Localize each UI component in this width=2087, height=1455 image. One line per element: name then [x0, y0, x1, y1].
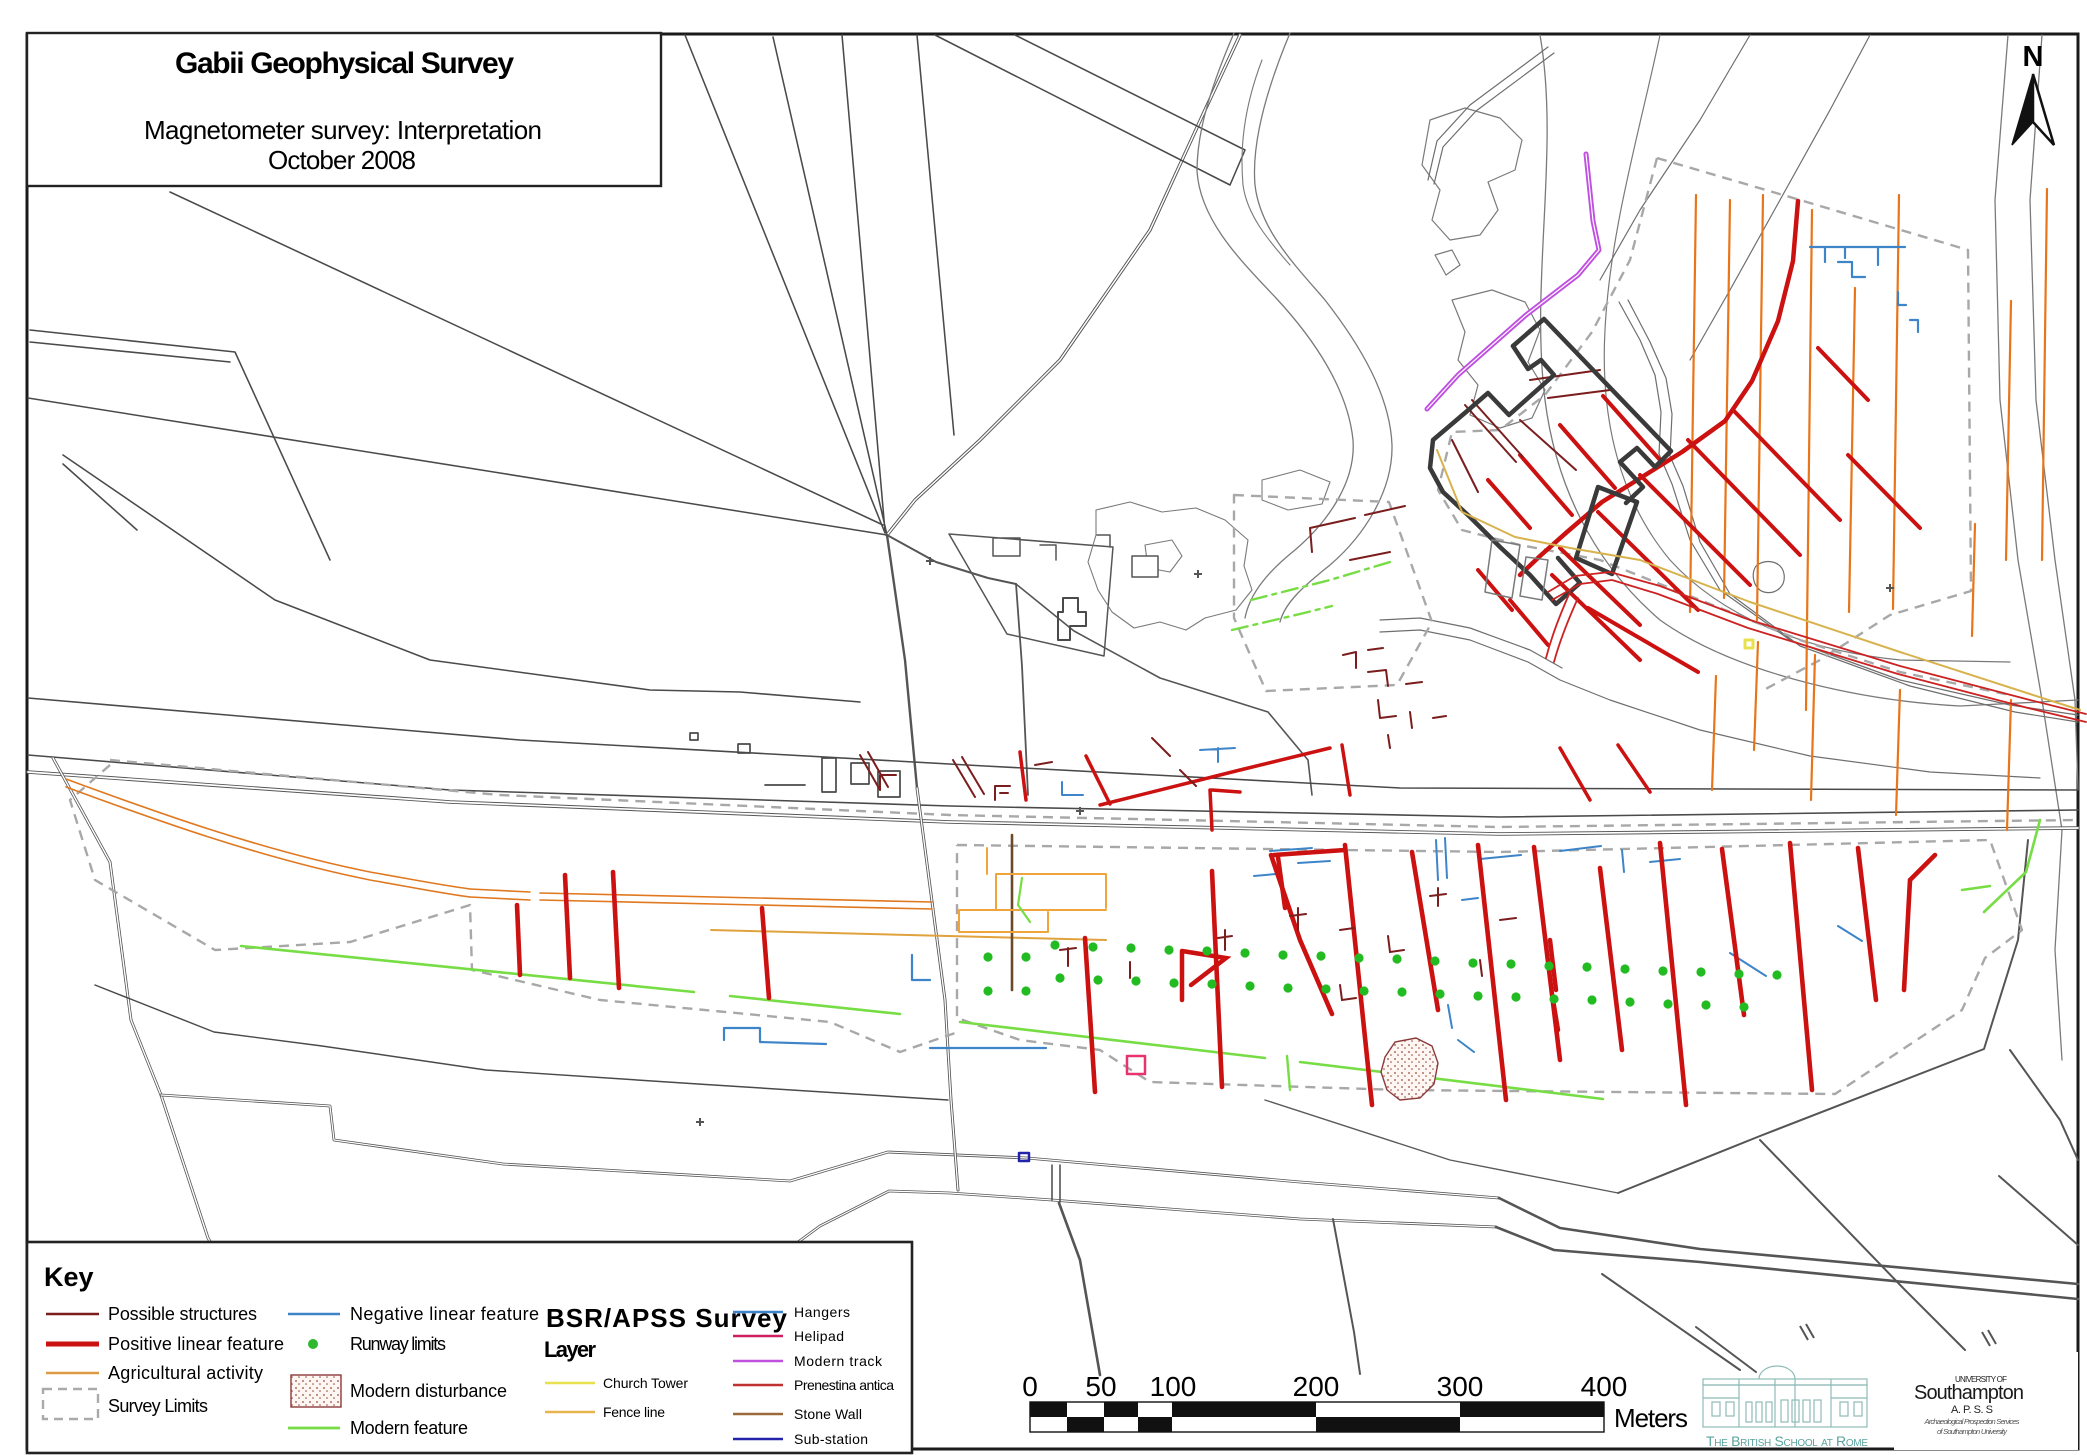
svg-text:200: 200 [1293, 1371, 1340, 1402]
svg-text:0: 0 [1022, 1371, 1038, 1402]
svg-text:100: 100 [1150, 1371, 1197, 1402]
svg-text:Runway limits: Runway limits [350, 1334, 446, 1354]
svg-text:October 2008: October 2008 [268, 145, 416, 175]
svg-text:300: 300 [1437, 1371, 1484, 1402]
svg-text:Meters: Meters [1614, 1403, 1688, 1433]
svg-text:Church Tower: Church Tower [603, 1375, 688, 1391]
svg-text:BSR/APSS Survey: BSR/APSS Survey [546, 1303, 788, 1333]
svg-text:Archaeological Prospection Ser: Archaeological Prospection Services [1924, 1417, 2020, 1426]
svg-text:Key: Key [44, 1262, 94, 1292]
svg-text:Helipad: Helipad [794, 1328, 844, 1344]
svg-text:of Southampton University: of Southampton University [1937, 1427, 2008, 1436]
svg-text:Positive linear feature: Positive linear feature [108, 1334, 284, 1354]
svg-text:The British School at Rome: The British School at Rome [1706, 1433, 1868, 1449]
svg-text:Layer: Layer [544, 1337, 596, 1362]
svg-text:Possible structures: Possible structures [108, 1304, 257, 1324]
svg-text:Southampton: Southampton [1914, 1382, 2024, 1404]
svg-text:N: N [2023, 41, 2044, 73]
svg-text:Hangers: Hangers [794, 1304, 850, 1320]
svg-text:Negative linear feature: Negative linear feature [350, 1304, 539, 1324]
svg-text:A. P. S. S: A. P. S. S [1951, 1404, 1993, 1416]
svg-text:Fence line: Fence line [603, 1404, 665, 1420]
svg-text:Modern disturbance: Modern disturbance [350, 1381, 507, 1401]
svg-text:Survey Limits: Survey Limits [108, 1396, 208, 1416]
svg-text:Modern feature: Modern feature [350, 1418, 468, 1438]
svg-text:Prenestina antica: Prenestina antica [794, 1377, 894, 1393]
svg-text:Stone Wall: Stone Wall [794, 1406, 862, 1422]
svg-text:Modern track: Modern track [794, 1353, 883, 1369]
svg-text:400: 400 [1581, 1371, 1628, 1402]
svg-text:Sub-station: Sub-station [794, 1431, 868, 1447]
svg-text:Gabii Geophysical Survey: Gabii Geophysical Survey [175, 47, 514, 80]
svg-text:50: 50 [1085, 1371, 1116, 1402]
svg-text:Agricultural activity: Agricultural activity [108, 1363, 263, 1383]
svg-text:Magnetometer survey: Interpret: Magnetometer survey: Interpretation [144, 115, 542, 145]
